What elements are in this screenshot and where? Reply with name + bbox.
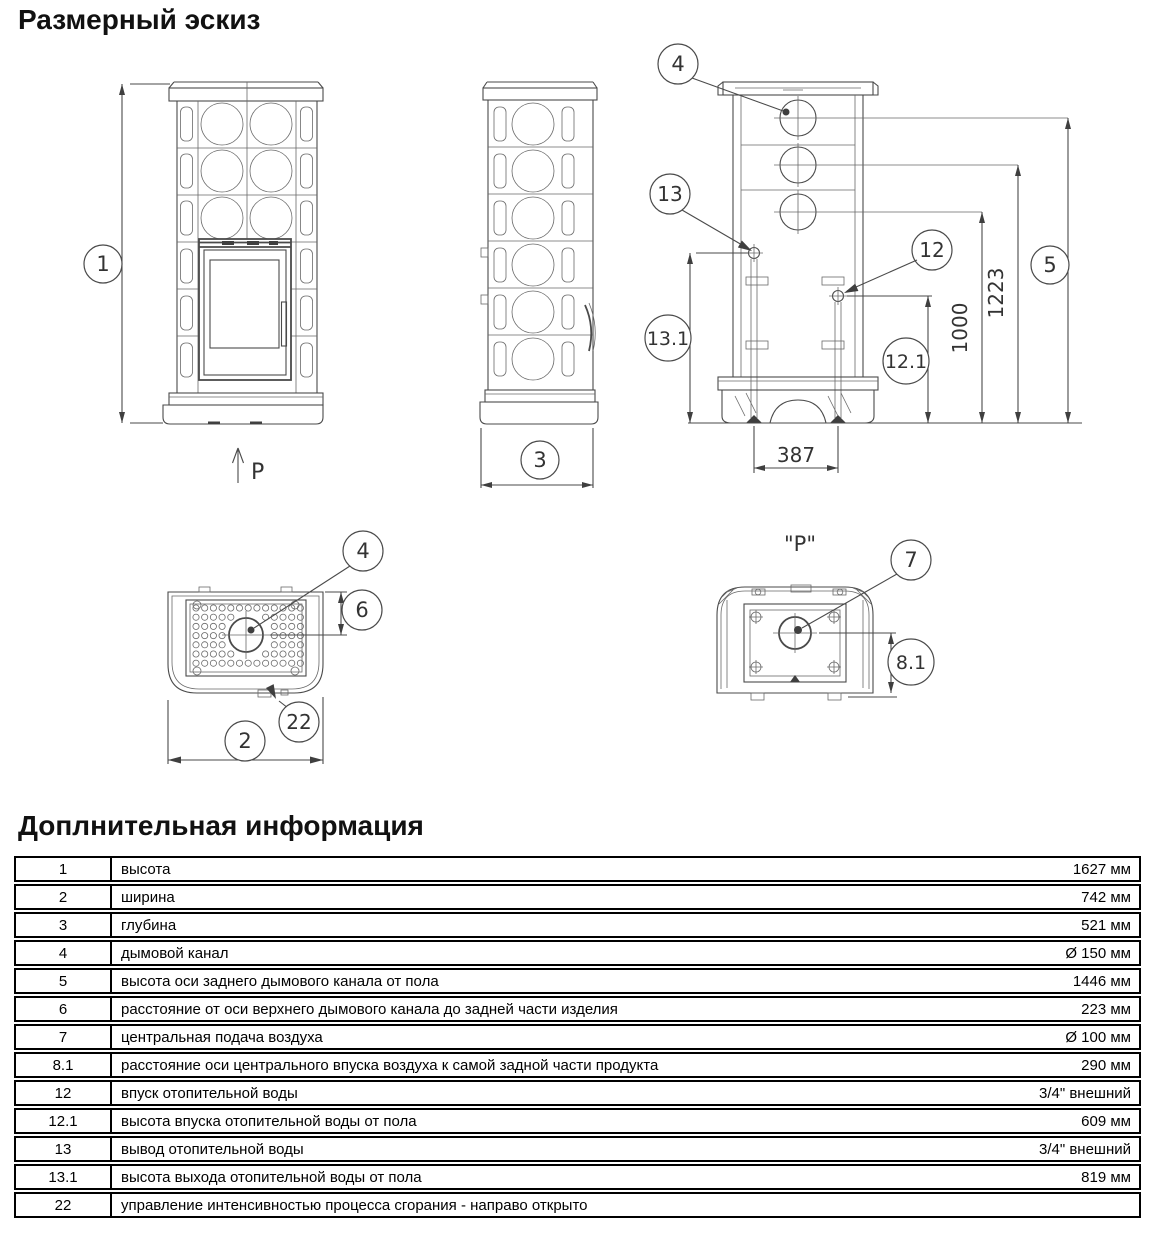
side-view: 3 <box>480 82 598 488</box>
row-description: высота <box>121 861 170 878</box>
row-value: 3/4" внешний <box>1029 1085 1131 1102</box>
balloon-7-label: 7 <box>904 548 917 572</box>
row-number: 12.1 <box>16 1110 112 1132</box>
row-number: 1 <box>16 858 112 880</box>
dim-387: 387 <box>754 426 838 473</box>
row-description: центральная подача воздуха <box>121 1029 323 1046</box>
row-value: 819 мм <box>1071 1169 1131 1186</box>
balloon-22-label: 22 <box>286 710 311 734</box>
spec-table: 1 высота1627 мм 2 ширина742 мм 3 глубина… <box>14 856 1141 1220</box>
row-value: 1627 мм <box>1063 861 1131 878</box>
row-number: 8.1 <box>16 1054 112 1076</box>
balloon-4-label: 4 <box>671 52 684 76</box>
row-description: высота оси заднего дымового канала от по… <box>121 973 439 990</box>
row-value: Ø 150 мм <box>1055 945 1131 962</box>
dim-inlet-height: 12.1 <box>847 296 932 423</box>
stove-door <box>199 239 291 380</box>
row-number: 5 <box>16 970 112 992</box>
table-row: 5 высота оси заднего дымового канала от … <box>14 968 1141 994</box>
row-value: 3/4" внешний <box>1029 1141 1131 1158</box>
rear-view: 4 13 12 13.1 <box>645 44 1082 473</box>
table-row: 22 управление интенсивностью процесса сг… <box>14 1192 1141 1218</box>
callout-air-inlet: 7 <box>802 540 931 628</box>
row-description: расстояние от оси верхнего дымового кана… <box>121 1001 618 1018</box>
row-description: высота впуска отопительной воды от пола <box>121 1113 417 1130</box>
dim-air-offset: 8.1 <box>819 633 934 697</box>
door-handle-side <box>585 305 591 351</box>
row-description: глубина <box>121 917 176 934</box>
row-value: 223 мм <box>1071 1001 1131 1018</box>
row-number: 7 <box>16 1026 112 1048</box>
table-row: 13.1 высота выхода отопительной воды от … <box>14 1164 1141 1190</box>
row-description: управление интенсивностью процесса сгора… <box>121 1197 588 1214</box>
p-view-title: "P" <box>784 532 816 556</box>
water-fittings <box>745 244 847 423</box>
dim-1223-label: 1223 <box>984 268 1008 319</box>
table-row: 12 впуск отопительной воды3/4" внешний <box>14 1080 1141 1106</box>
p-view: "P" 7 <box>717 532 934 700</box>
row-value: 1446 мм <box>1063 973 1131 990</box>
grate-holes <box>193 605 304 666</box>
direction-label: P <box>251 460 264 485</box>
dim-flue-height: 5 <box>1031 118 1071 423</box>
dim-387-label: 387 <box>777 443 815 467</box>
balloon-5-label: 5 <box>1043 253 1056 277</box>
dimensional-drawing: 1 P <box>0 0 1155 805</box>
row-description: дымовой канал <box>121 945 229 962</box>
top-view: 4 6 22 <box>168 531 383 764</box>
table-row: 8.1 расстояние оси центрального впуска в… <box>14 1052 1141 1078</box>
table-row: 2 ширина742 мм <box>14 884 1141 910</box>
dim-1000-label: 1000 <box>948 303 972 354</box>
table-row: 13 вывод отопительной воды3/4" внешний <box>14 1136 1141 1162</box>
callout-water-inlet: 12 <box>842 230 952 297</box>
balloon-12.1-label: 12.1 <box>885 351 927 373</box>
row-value: 290 мм <box>1071 1057 1131 1074</box>
dim-1223: 1223 <box>984 165 1021 423</box>
row-number: 22 <box>16 1194 112 1216</box>
row-description: вывод отопительной воды <box>121 1141 304 1158</box>
row-number: 12 <box>16 1082 112 1104</box>
balloon-8.1-label: 8.1 <box>896 652 926 674</box>
row-number: 3 <box>16 914 112 936</box>
balloon-4-top-label: 4 <box>356 539 369 563</box>
balloon-2-label: 2 <box>238 729 251 753</box>
row-number: 13.1 <box>16 1166 112 1188</box>
section-title-additional-info: Доплнительная информация <box>18 810 424 842</box>
row-number: 2 <box>16 886 112 908</box>
balloon-1-label: 1 <box>96 252 109 276</box>
row-value: 521 мм <box>1071 917 1131 934</box>
dimensional-sketch-page: Размерный эскиз <box>0 0 1155 1233</box>
callout-control: 22 <box>258 682 319 742</box>
callout-flue: 4 <box>658 44 790 116</box>
dim-flue-offset: 6 <box>270 590 382 635</box>
dim-depth: 3 <box>481 428 593 488</box>
row-description: ширина <box>121 889 175 906</box>
row-description: высота выхода отопительной воды от пола <box>121 1169 422 1186</box>
balloon-13-label: 13 <box>657 182 682 206</box>
view-direction-arrow: P <box>233 448 265 485</box>
row-description: расстояние оси центрального впуска возду… <box>121 1057 658 1074</box>
balloon-3-label: 3 <box>533 448 546 472</box>
balloon-13.1-label: 13.1 <box>647 328 689 350</box>
table-row: 1 высота1627 мм <box>14 856 1141 882</box>
row-number: 13 <box>16 1138 112 1160</box>
balloon-12-label: 12 <box>919 238 944 262</box>
row-description: впуск отопительной воды <box>121 1085 298 1102</box>
table-row: 4 дымовой каналØ 150 мм <box>14 940 1141 966</box>
row-value: Ø 100 мм <box>1055 1029 1131 1046</box>
table-row: 12.1 высота впуска отопительной воды от … <box>14 1108 1141 1134</box>
row-value: 742 мм <box>1071 889 1131 906</box>
front-view: 1 P <box>84 82 323 485</box>
row-number: 6 <box>16 998 112 1020</box>
dim-height: 1 <box>84 84 170 423</box>
table-row: 6 расстояние от оси верхнего дымового ка… <box>14 996 1141 1022</box>
row-value: 609 мм <box>1071 1113 1131 1130</box>
table-row: 3 глубина521 мм <box>14 912 1141 938</box>
dim-1000: 1000 <box>948 212 985 423</box>
balloon-6-label: 6 <box>355 598 368 622</box>
callout-water-outlet: 13 <box>650 174 754 254</box>
table-row: 7 центральная подача воздухаØ 100 мм <box>14 1024 1141 1050</box>
row-number: 4 <box>16 942 112 964</box>
